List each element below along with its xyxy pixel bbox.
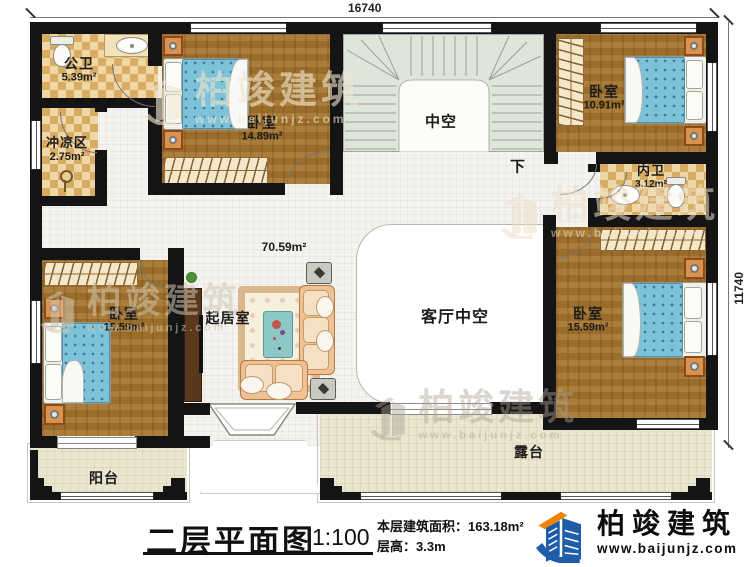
armrest-cushion (316, 296, 334, 318)
wall (148, 183, 285, 195)
wall (490, 402, 544, 414)
title-underline (143, 552, 373, 555)
coffee-table (263, 311, 293, 358)
tv-icon (199, 315, 203, 373)
wall (543, 215, 556, 430)
wardrobe (44, 262, 138, 286)
window (31, 120, 41, 170)
room-label-bedroom-top: 卧室 14.89m² (242, 115, 283, 144)
wall (184, 403, 210, 415)
nightstand (44, 298, 65, 319)
room-label-living-void: 客厅中空 (421, 309, 489, 327)
room-label-living: 起居室 (206, 310, 251, 326)
dimension-right-value: 11740 (732, 272, 746, 305)
nightstand (684, 36, 704, 56)
wall (148, 22, 162, 66)
wall (592, 215, 718, 227)
bed-blanket (62, 360, 84, 403)
room-label-bedroom-left: 卧室 15.59m² (104, 306, 145, 335)
wall (544, 22, 556, 164)
bed-pillows (686, 91, 703, 120)
bed-pillows (45, 326, 62, 362)
wall (168, 248, 184, 436)
drawing-scale: 1:100 (312, 524, 370, 551)
plant-icon (186, 272, 197, 283)
end-table (310, 378, 336, 400)
stair-down-label: 下 (510, 158, 526, 175)
room-label-balcony: 阳台 (89, 470, 119, 486)
armrest-cushion (316, 330, 334, 352)
dimension-line-right (728, 22, 729, 448)
pillar (688, 478, 710, 500)
toilet-icon (667, 184, 685, 208)
shower-hose (64, 180, 66, 192)
porch-outline (200, 440, 320, 494)
bed-pillows (684, 321, 702, 353)
window (600, 23, 697, 33)
wall (95, 150, 107, 196)
wall (30, 22, 42, 448)
floor-info: 本层建筑面积：163.18m² 层高：3.3m (377, 517, 524, 556)
sliding-door-terrace (390, 403, 492, 415)
brand-name: 柏竣建筑 (597, 510, 738, 538)
room-label-bedroom-topright: 卧室 10.91m² (584, 84, 625, 113)
wall (30, 196, 107, 206)
wardrobe (600, 229, 706, 251)
nightstand (44, 404, 65, 425)
sliding-door-balcony (57, 437, 137, 449)
wall (135, 436, 210, 448)
pillar (30, 478, 52, 500)
room-label-stair-void: 中空 (425, 113, 457, 130)
floor-plan-canvas: 16740 11740 (0, 0, 750, 567)
room-label-bedroom-right: 卧室 15.59m² (568, 306, 609, 335)
wardrobe (558, 38, 584, 126)
dimension-top-value: 16740 (348, 1, 381, 15)
bed-pillows (686, 60, 703, 89)
wall (544, 152, 558, 164)
wardrobe (164, 157, 268, 184)
dimension-line-top (30, 17, 718, 18)
brand-url: www.baijunjz.com (597, 542, 738, 556)
bed-pillows (45, 364, 62, 400)
bed-pillows (165, 94, 182, 124)
brand-logo: 柏竣建筑 www.baijunjz.com (533, 503, 738, 563)
pillar (163, 478, 185, 500)
room-label-terrace: 露台 (514, 444, 544, 460)
window (382, 23, 492, 33)
wall (30, 436, 57, 448)
wall (30, 248, 140, 260)
ottoman (266, 382, 292, 400)
nightstand (163, 36, 183, 56)
room-label-public-bath: 公卫 5.39m² (62, 56, 97, 85)
bay-window (206, 402, 298, 440)
room-label-shower: 冲凉区 2.75m² (46, 136, 88, 164)
nightstand (684, 126, 704, 146)
bed-pillows (165, 62, 182, 92)
brand-logo-icon (533, 503, 589, 563)
window (707, 282, 717, 356)
terrace-window (560, 492, 672, 500)
wall (148, 104, 162, 184)
shower-head-icon (60, 170, 73, 183)
nightstand (163, 130, 183, 150)
title-block: 二层平面图 1:100 本层建筑面积：163.18m² 层高：3.3m 柏 (0, 505, 750, 567)
ottoman (240, 376, 264, 394)
end-table (306, 262, 332, 284)
pillar (320, 478, 342, 500)
staircase (343, 34, 544, 152)
balcony-window (60, 492, 154, 500)
nightstand (684, 356, 705, 377)
bed-pillows (684, 287, 702, 319)
wall (95, 98, 107, 112)
window (190, 23, 287, 33)
terrace-window (360, 492, 502, 500)
room-label-ensuite: 内卫 3.12m² (635, 164, 667, 190)
window (636, 419, 700, 429)
window (31, 300, 41, 364)
sink-icon (116, 37, 148, 54)
wall (296, 402, 390, 414)
hall-area-label: 70.59m² (262, 241, 307, 255)
window (707, 62, 717, 132)
nightstand (684, 258, 705, 279)
wall (330, 22, 343, 195)
